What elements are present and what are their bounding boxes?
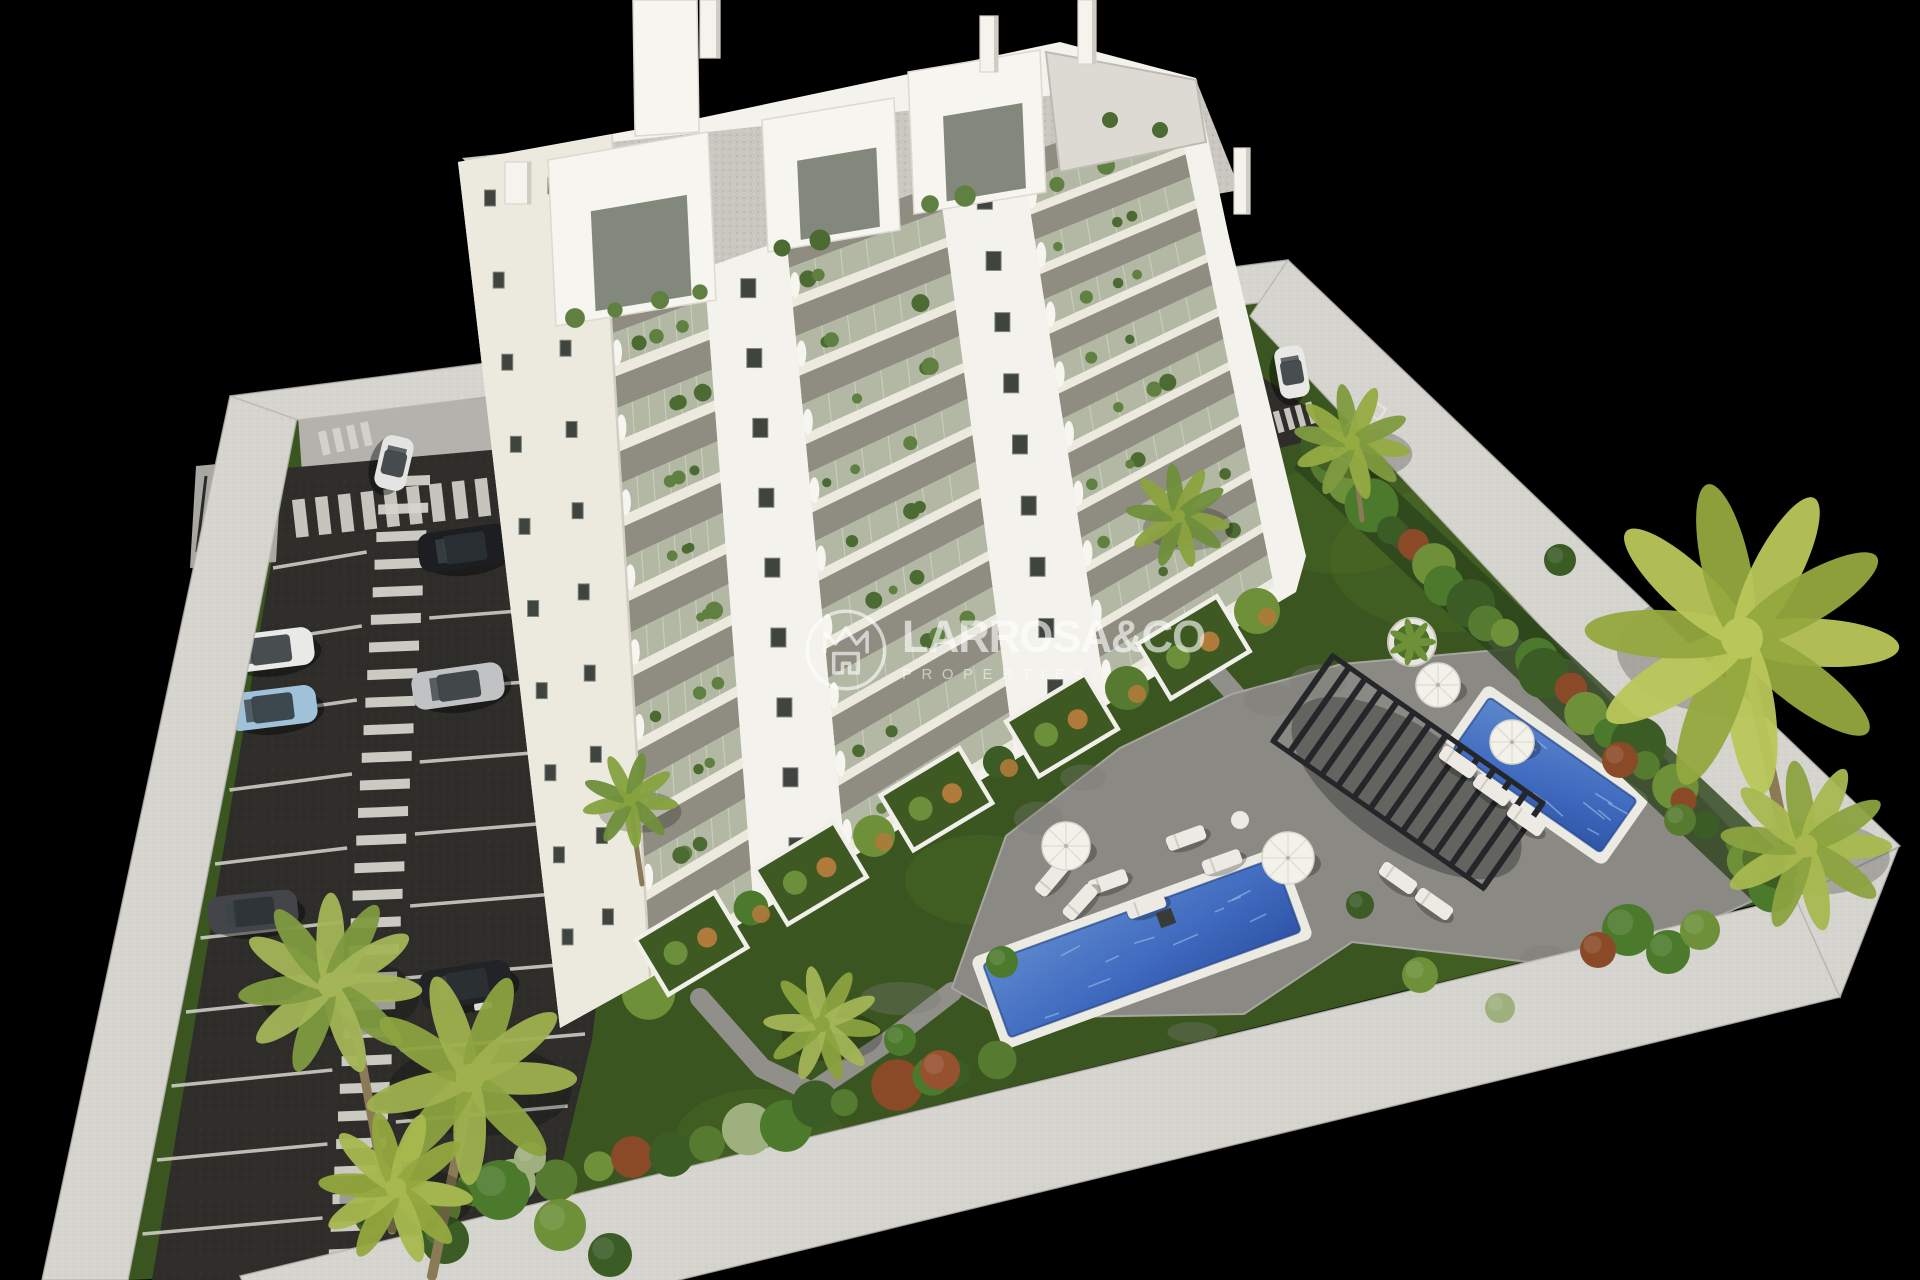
property-render-scene: LARROSA&CO PROPERTIES xyxy=(0,0,1920,1280)
scene-canvas xyxy=(0,0,1920,1280)
round-planter xyxy=(1388,618,1436,667)
table xyxy=(1231,811,1249,829)
